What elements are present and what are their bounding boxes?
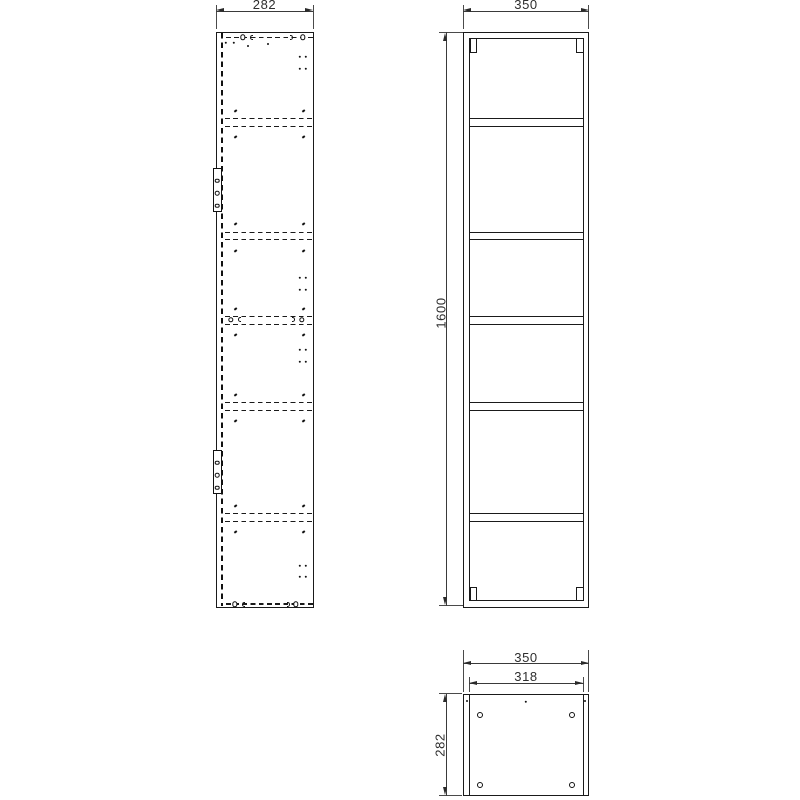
extension-line bbox=[439, 693, 462, 694]
dim-arrow-icon bbox=[443, 694, 447, 702]
dim-arrow-icon bbox=[443, 787, 447, 795]
extension-line bbox=[439, 795, 462, 796]
dim-plan-depth: 282 bbox=[0, 0, 800, 800]
dim-label-plan-depth: 282 bbox=[433, 733, 446, 757]
technical-drawing-canvas: 282 350 1600 bbox=[0, 0, 800, 800]
